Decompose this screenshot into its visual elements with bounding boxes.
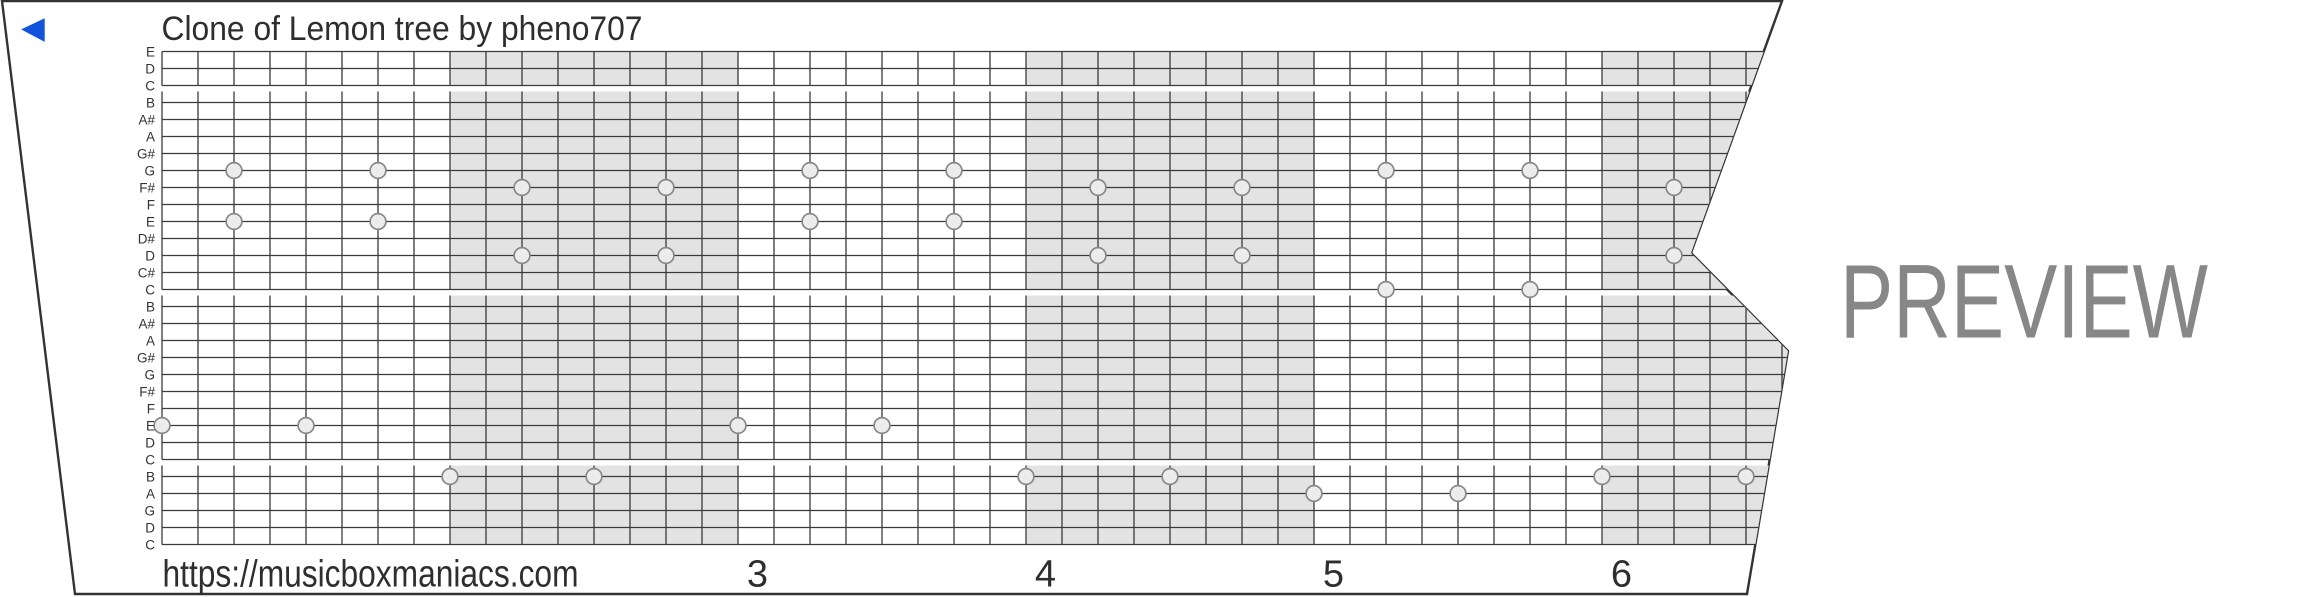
svg-text:5: 5	[1323, 554, 1344, 596]
svg-text:D: D	[145, 520, 155, 535]
svg-text:A: A	[146, 486, 155, 501]
svg-text:6: 6	[1611, 554, 1632, 596]
svg-text:Clone of Lemon tree by pheno70: Clone of Lemon tree by pheno707	[162, 10, 643, 48]
svg-text:G#: G#	[137, 350, 156, 365]
svg-text:B: B	[146, 469, 155, 484]
svg-text:A#: A#	[138, 112, 155, 127]
svg-text:A: A	[146, 333, 155, 348]
svg-text:PREVIEW: PREVIEW	[1840, 244, 2208, 361]
svg-text:F: F	[147, 197, 155, 212]
svg-text:C: C	[145, 282, 155, 297]
svg-text:F#: F#	[139, 180, 155, 195]
svg-text:A: A	[146, 129, 155, 144]
svg-text:C: C	[145, 452, 155, 467]
svg-text:3: 3	[747, 554, 768, 596]
svg-text:C: C	[145, 537, 155, 552]
svg-text:D: D	[145, 248, 155, 263]
svg-text:F#: F#	[139, 384, 155, 399]
svg-text:G#: G#	[137, 146, 156, 161]
svg-text:D: D	[145, 435, 155, 450]
svg-text:D: D	[145, 61, 155, 76]
svg-text:D#: D#	[138, 231, 156, 246]
svg-text:4: 4	[1035, 554, 1056, 596]
svg-text:F: F	[147, 401, 155, 416]
svg-text:E: E	[146, 44, 155, 59]
svg-text:C: C	[145, 78, 155, 93]
svg-text:G: G	[144, 503, 155, 518]
svg-text:E: E	[146, 214, 155, 229]
svg-text:A#: A#	[138, 316, 155, 331]
svg-text:B: B	[146, 299, 155, 314]
svg-text:G: G	[144, 163, 155, 178]
svg-text:https://musicboxmaniacs.com: https://musicboxmaniacs.com	[163, 554, 579, 596]
svg-text:E: E	[146, 418, 155, 433]
svg-text:C#: C#	[138, 265, 156, 280]
svg-text:B: B	[146, 95, 155, 110]
svg-text:G: G	[144, 367, 155, 382]
